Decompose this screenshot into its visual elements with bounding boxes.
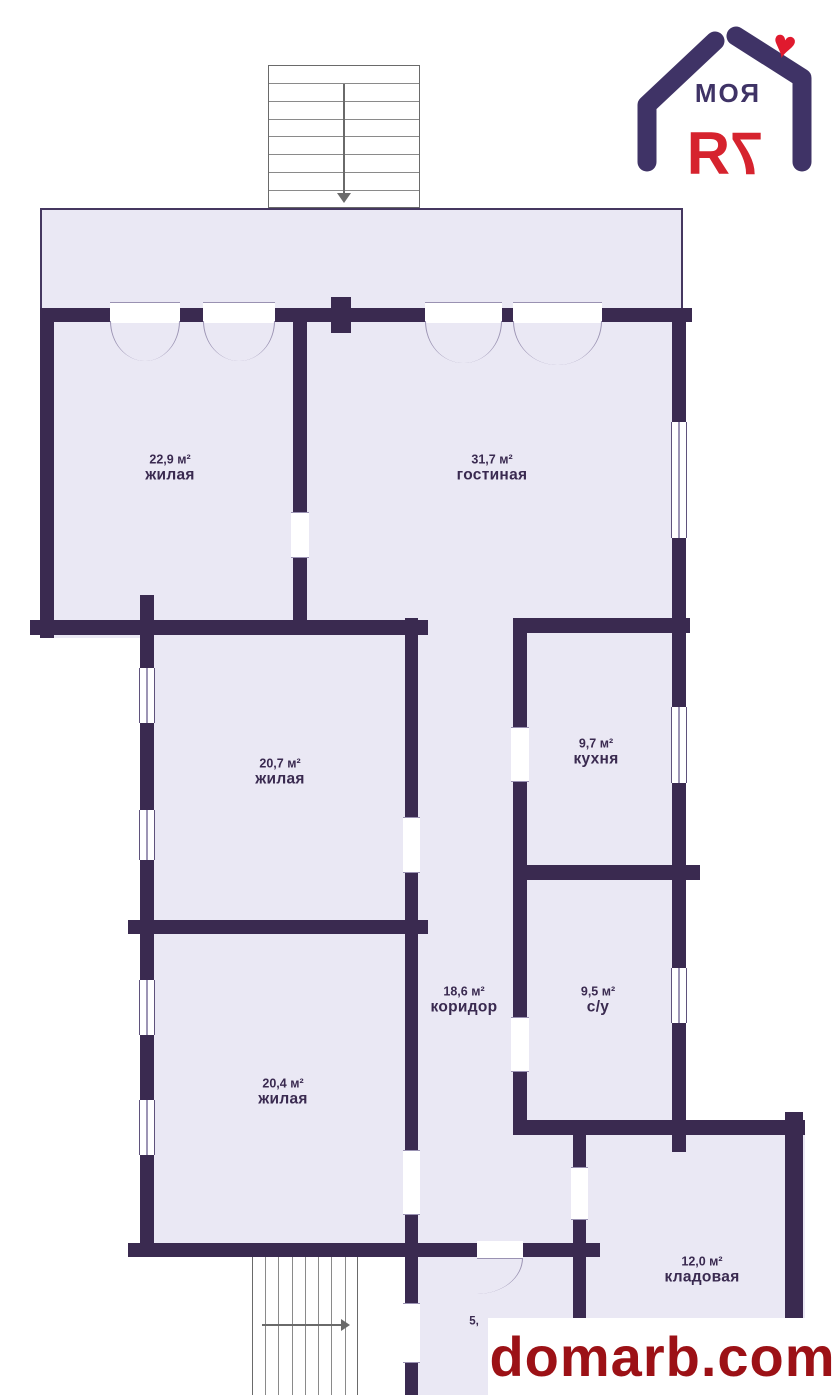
room-name: жилая xyxy=(255,770,305,787)
wall xyxy=(128,920,428,934)
room-label-kuhnya: 9,7 м² кухня xyxy=(573,736,618,767)
room-label-kladovaya: 12,0 м² кладовая xyxy=(664,1254,739,1285)
window xyxy=(139,980,155,1035)
door-opening xyxy=(403,1150,420,1215)
stair-step xyxy=(331,1257,332,1395)
door-opening xyxy=(511,1017,529,1072)
room-area: 22,9 м² xyxy=(145,452,195,466)
room-area: 9,5 м² xyxy=(581,984,615,998)
room-label-gostinaya: 31,7 м² гостиная xyxy=(457,452,528,483)
wall xyxy=(30,620,428,635)
window xyxy=(139,1100,155,1155)
window xyxy=(139,810,155,860)
door-opening xyxy=(571,1167,588,1220)
window-glazing xyxy=(146,1100,148,1155)
wall xyxy=(513,1120,805,1135)
door-opening xyxy=(110,302,180,323)
watermark: domarb.com xyxy=(488,1318,837,1395)
room-name: кухня xyxy=(573,750,618,767)
wall xyxy=(405,618,418,1395)
door-opening xyxy=(403,1303,420,1363)
room-label-zhilaya-1: 22,9 м² жилая xyxy=(145,452,195,483)
door-opening xyxy=(291,512,309,558)
logo-house-icon: ♥ МОЯ 7Я xyxy=(612,16,827,201)
watermark-text: domarb.com xyxy=(489,1324,835,1389)
arrow-head-icon xyxy=(337,193,351,203)
room-area: 20,4 м² xyxy=(258,1076,308,1090)
stair-step xyxy=(305,1257,306,1395)
room-label-zhilaya-3: 20,4 м² жилая xyxy=(258,1076,308,1107)
room-name: жилая xyxy=(145,466,195,483)
wall xyxy=(331,297,351,333)
door-opening xyxy=(425,302,502,323)
room-area: 12,0 м² xyxy=(664,1254,739,1268)
stair-step xyxy=(265,1257,266,1395)
logo: ♥ МОЯ 7Я xyxy=(612,16,827,201)
floor-plan: 22,9 м² жилая 31,7 м² гостиная 20,7 м² ж… xyxy=(0,0,837,1395)
window-glazing xyxy=(678,422,680,538)
door-opening xyxy=(513,302,602,323)
logo-heart-icon: ♥ xyxy=(768,21,800,69)
window-glazing xyxy=(678,707,680,783)
entrance-door-opening xyxy=(477,1241,523,1259)
arrow-head-icon xyxy=(341,1319,350,1331)
window-glazing xyxy=(146,668,148,723)
room-label-koridor: 18,6 м² коридор xyxy=(431,984,498,1015)
room-name: кладовая xyxy=(664,1268,739,1285)
wall xyxy=(40,308,54,638)
room-label-su: 9,5 м² с/у xyxy=(581,984,615,1015)
wall xyxy=(515,618,690,633)
room-label-zhilaya-2: 20,7 м² жилая xyxy=(255,756,305,787)
room-name: гостиная xyxy=(457,466,528,483)
room-area: 18,6 м² xyxy=(431,984,498,998)
window-glazing xyxy=(146,810,148,860)
room-area: 9,7 м² xyxy=(573,736,618,750)
logo-text-bottom: 7Я xyxy=(687,120,764,187)
window xyxy=(671,968,687,1023)
window xyxy=(671,422,687,538)
room-area: 5, xyxy=(469,1316,479,1329)
wall xyxy=(128,1243,600,1257)
stair-step xyxy=(292,1257,293,1395)
stair-step xyxy=(278,1257,279,1395)
door-opening xyxy=(203,302,275,323)
room-name: коридор xyxy=(431,998,498,1015)
room-name: жилая xyxy=(258,1090,308,1107)
window xyxy=(139,668,155,723)
wall xyxy=(293,308,307,635)
stair-direction-arrow xyxy=(262,1324,342,1326)
room-label-porch-partial: 5, xyxy=(469,1316,479,1329)
door-opening xyxy=(403,817,420,873)
room-area: 20,7 м² xyxy=(255,756,305,770)
room-name: с/у xyxy=(581,998,615,1015)
window-glazing xyxy=(678,968,680,1023)
stair-step xyxy=(318,1257,319,1395)
stair-direction-arrow xyxy=(343,84,345,194)
terrace-area xyxy=(40,208,683,310)
door-opening xyxy=(511,727,529,782)
room-area: 31,7 м² xyxy=(457,452,528,466)
window xyxy=(671,707,687,783)
logo-text-top: МОЯ xyxy=(695,78,761,108)
window-glazing xyxy=(146,980,148,1035)
